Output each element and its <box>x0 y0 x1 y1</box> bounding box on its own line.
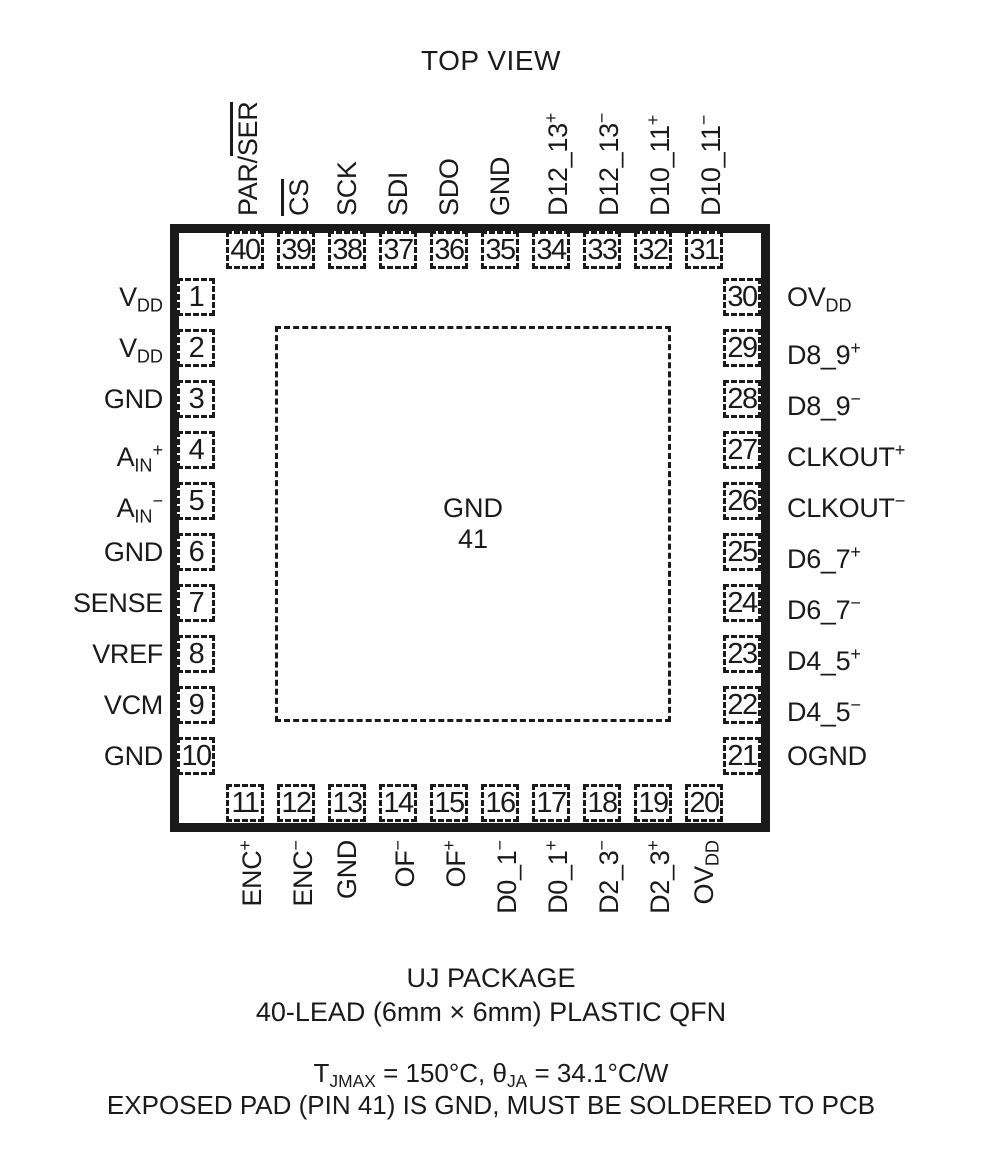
label-part: + <box>643 115 663 126</box>
pin-24-number: 24 <box>727 587 756 620</box>
pin-9-box: 9 <box>177 686 215 724</box>
pin-27-number: 27 <box>727 434 756 467</box>
label-part: D12_13 <box>594 123 624 216</box>
pin-4-box: 4 <box>177 431 215 469</box>
label-part: A <box>117 493 135 523</box>
pin-29-number: 29 <box>727 332 756 365</box>
pin-24-box: 24 <box>723 584 761 622</box>
pin-18-label: D2_3− <box>587 840 617 1000</box>
label-part: D4_5 <box>787 697 850 727</box>
pin-35-label: GND <box>485 56 515 216</box>
pin-26-number: 26 <box>727 485 756 518</box>
pin-38-box: 38 <box>328 231 366 269</box>
pin-18-number: 18 <box>587 787 616 820</box>
pin-31-box: 31 <box>685 231 723 269</box>
pin-21-number: 21 <box>727 740 756 773</box>
label-part: + <box>235 840 255 851</box>
label-part: D6_7 <box>787 544 850 574</box>
label-part: SDI <box>383 172 413 216</box>
pin-32-label: D10_11+ <box>638 56 668 216</box>
pin-36-label: SDO <box>434 56 464 216</box>
pin-9-number: 9 <box>189 689 204 722</box>
pin-19-box: 19 <box>634 784 672 822</box>
label-part: OGND <box>787 741 867 771</box>
pin-20-number: 20 <box>689 787 718 820</box>
label-part: DD <box>137 346 163 366</box>
label-part: OF <box>441 851 471 888</box>
pin-32-number: 32 <box>638 234 667 267</box>
label-part: SER <box>230 102 262 157</box>
pin-10-label: GND <box>0 741 163 771</box>
label-part: − <box>850 593 861 613</box>
package-description: 40-LEAD (6mm × 6mm) PLASTIC QFN <box>0 996 982 1028</box>
label-part: = 34.1°C/W <box>527 1058 668 1088</box>
label-part: GND <box>332 840 362 899</box>
label-part: DD <box>825 295 851 315</box>
pin-15-number: 15 <box>434 787 463 820</box>
exposed-pad: GND 41 <box>275 326 671 722</box>
pin-39-label: CS <box>281 56 311 216</box>
pin-33-box: 33 <box>583 231 621 269</box>
pin-3-label: GND <box>0 384 163 414</box>
label-part: CLKOUT <box>787 493 895 523</box>
pin-7-number: 7 <box>189 587 204 620</box>
pin-23-box: 23 <box>723 635 761 673</box>
label-part: + <box>541 840 561 851</box>
label-part: IN <box>134 506 152 526</box>
label-part: + <box>895 440 906 460</box>
label-part: D8_9 <box>787 391 850 421</box>
pin-30-label: OVDD <box>787 282 982 312</box>
label-part: A <box>117 442 135 472</box>
label-part: SENSE <box>73 588 163 618</box>
label-part: CS <box>281 179 313 216</box>
label-part: OF <box>390 851 420 888</box>
label-part: D10_11 <box>645 125 675 216</box>
exposed-pad-label: GND <box>443 493 503 524</box>
label-part: − <box>895 491 906 511</box>
label-part: GND <box>104 741 163 771</box>
label-part: V <box>119 282 137 312</box>
pin-35-number: 35 <box>485 234 514 267</box>
label-part: OV <box>689 866 719 904</box>
pin-14-label: OF− <box>383 840 413 1000</box>
pin-13-label: GND <box>332 840 362 1000</box>
pin-1-number: 1 <box>189 281 204 314</box>
pin-36-number: 36 <box>434 234 463 267</box>
label-part: + <box>439 840 459 851</box>
pin-7-box: 7 <box>177 584 215 622</box>
pin-19-number: 19 <box>638 787 667 820</box>
pin-39-box: 39 <box>277 231 315 269</box>
label-part: D0_1 <box>543 851 573 914</box>
label-part: ENC <box>288 851 318 907</box>
pin-37-label: SDI <box>383 56 413 216</box>
pin-12-box: 12 <box>277 784 315 822</box>
label-part: + <box>850 542 861 562</box>
pin-23-number: 23 <box>727 638 756 671</box>
pin-28-box: 28 <box>723 380 761 418</box>
label-part: − <box>592 840 612 851</box>
label-part: D2_3 <box>594 851 624 914</box>
label-part: − <box>850 389 861 409</box>
pin-30-number: 30 <box>727 281 756 314</box>
label-part: + <box>850 338 861 358</box>
pin-14-number: 14 <box>383 787 412 820</box>
label-part: V <box>119 333 137 363</box>
label-part: − <box>286 840 306 851</box>
pin-20-label: OVDD <box>689 840 719 1000</box>
pin-30-box: 30 <box>723 278 761 316</box>
label-part: − <box>694 115 714 126</box>
pin-26-label: CLKOUT− <box>787 486 982 516</box>
label-part: PAR/ <box>233 156 263 216</box>
pin-7-label: SENSE <box>0 588 163 618</box>
pin-26-box: 26 <box>723 482 761 520</box>
label-part: VREF <box>92 639 163 669</box>
pin-29-box: 29 <box>723 329 761 367</box>
label-part: GND <box>104 384 163 414</box>
label-part: D10_11 <box>696 125 726 216</box>
pin-3-number: 3 <box>189 383 204 416</box>
pin-17-number: 17 <box>536 787 565 820</box>
label-part: − <box>490 840 510 851</box>
label-part: D12_13 <box>543 123 573 216</box>
pin-13-number: 13 <box>332 787 361 820</box>
pin-34-box: 34 <box>532 231 570 269</box>
label-part: + <box>643 840 663 851</box>
pin-21-box: 21 <box>723 737 761 775</box>
pin-3-box: 3 <box>177 380 215 418</box>
pin-31-label: D10_11− <box>689 56 719 216</box>
label-part: ENC <box>237 851 267 907</box>
label-part: VCM <box>104 690 163 720</box>
pin-40-label: PAR/SER <box>230 56 260 216</box>
label-part: SDO <box>434 158 464 216</box>
pin-8-box: 8 <box>177 635 215 673</box>
pin-5-number: 5 <box>189 485 204 518</box>
label-part: DD <box>137 295 163 315</box>
pin-28-number: 28 <box>727 383 756 416</box>
pin-33-label: D12_13− <box>587 56 617 216</box>
pin-25-label: D6_7+ <box>787 537 982 567</box>
pin-22-number: 22 <box>727 689 756 722</box>
pin-17-box: 17 <box>532 784 570 822</box>
pin-38-number: 38 <box>332 234 361 267</box>
pin-2-box: 2 <box>177 329 215 367</box>
pin-27-box: 27 <box>723 431 761 469</box>
pin-17-label: D0_1+ <box>536 840 566 1000</box>
pin-19-label: D2_3+ <box>638 840 668 1000</box>
exposed-pad-number: 41 <box>458 524 488 555</box>
label-part: − <box>388 840 408 851</box>
pin-16-label: D0_1− <box>485 840 515 1000</box>
pin-25-number: 25 <box>727 536 756 569</box>
pin-5-box: 5 <box>177 482 215 520</box>
pin-34-number: 34 <box>536 234 565 267</box>
label-part: D2_3 <box>645 851 675 914</box>
pin-39-number: 39 <box>281 234 310 267</box>
pin-29-label: D8_9+ <box>787 333 982 363</box>
pin-12-number: 12 <box>281 787 310 820</box>
pin-16-box: 16 <box>481 784 519 822</box>
pin-37-number: 37 <box>383 234 412 267</box>
label-part: + <box>152 440 163 460</box>
pin-11-box: 11 <box>226 784 264 822</box>
pin-4-label: AIN+ <box>0 435 163 465</box>
pin-1-box: 1 <box>177 278 215 316</box>
pin-24-label: D6_7− <box>787 588 982 618</box>
pin-35-box: 35 <box>481 231 519 269</box>
label-part: T <box>314 1058 330 1088</box>
pin-14-box: 14 <box>379 784 417 822</box>
pin-13-box: 13 <box>328 784 366 822</box>
pin-2-label: VDD <box>0 333 163 363</box>
label-part: OV <box>787 282 825 312</box>
pin-6-number: 6 <box>189 536 204 569</box>
label-part: SCK <box>332 161 362 216</box>
qfn-pinout-diagram: TOP VIEW GND 41 UJ PACKAGE 40-LEAD (6mm … <box>0 0 982 1165</box>
label-part: IN <box>134 455 152 475</box>
label-part: D0_1 <box>492 851 522 914</box>
pin-22-label: D4_5− <box>787 690 982 720</box>
pin-38-label: SCK <box>332 56 362 216</box>
pin-40-number: 40 <box>230 234 259 267</box>
pin-37-box: 37 <box>379 231 417 269</box>
label-part: D4_5 <box>787 646 850 676</box>
pin-22-box: 22 <box>723 686 761 724</box>
pin-40-box: 40 <box>226 231 264 269</box>
pin-16-number: 16 <box>485 787 514 820</box>
label-part: − <box>850 695 861 715</box>
label-part: CLKOUT <box>787 442 895 472</box>
label-part: D8_9 <box>787 340 850 370</box>
pin-32-box: 32 <box>634 231 672 269</box>
pin-15-label: OF+ <box>434 840 464 1000</box>
label-part: = 150°C, θ <box>376 1058 507 1088</box>
pin-11-label: ENC+ <box>230 840 260 1000</box>
pin-10-box: 10 <box>177 737 215 775</box>
pin-18-box: 18 <box>583 784 621 822</box>
label-part: + <box>850 644 861 664</box>
pin-5-label: AIN− <box>0 486 163 516</box>
pin-21-label: OGND <box>787 741 982 771</box>
pin-33-number: 33 <box>587 234 616 267</box>
pin-9-label: VCM <box>0 690 163 720</box>
pin-28-label: D8_9− <box>787 384 982 414</box>
pin-10-number: 10 <box>181 740 210 773</box>
pin-25-box: 25 <box>723 533 761 571</box>
pin-8-label: VREF <box>0 639 163 669</box>
pin-12-label: ENC− <box>281 840 311 1000</box>
label-part: DD <box>702 840 722 866</box>
label-part: − <box>592 113 612 124</box>
label-part: GND <box>104 537 163 567</box>
pin-20-box: 20 <box>685 784 723 822</box>
pin-2-number: 2 <box>189 332 204 365</box>
label-part: D6_7 <box>787 595 850 625</box>
label-part: − <box>152 491 163 511</box>
pin-11-number: 11 <box>231 787 258 820</box>
pin-4-number: 4 <box>189 434 204 467</box>
pin-23-label: D4_5+ <box>787 639 982 669</box>
label-part: + <box>541 113 561 124</box>
pin-31-number: 31 <box>689 234 718 267</box>
label-part: GND <box>485 157 515 216</box>
pin-34-label: D12_13+ <box>536 56 566 216</box>
pin-6-label: GND <box>0 537 163 567</box>
pin-1-label: VDD <box>0 282 163 312</box>
pin-15-box: 15 <box>430 784 468 822</box>
exposed-pad-note: EXPOSED PAD (PIN 41) IS GND, MUST BE SOL… <box>0 1089 982 1121</box>
pin-8-number: 8 <box>189 638 204 671</box>
pin-6-box: 6 <box>177 533 215 571</box>
pin-27-label: CLKOUT+ <box>787 435 982 465</box>
pin-36-box: 36 <box>430 231 468 269</box>
